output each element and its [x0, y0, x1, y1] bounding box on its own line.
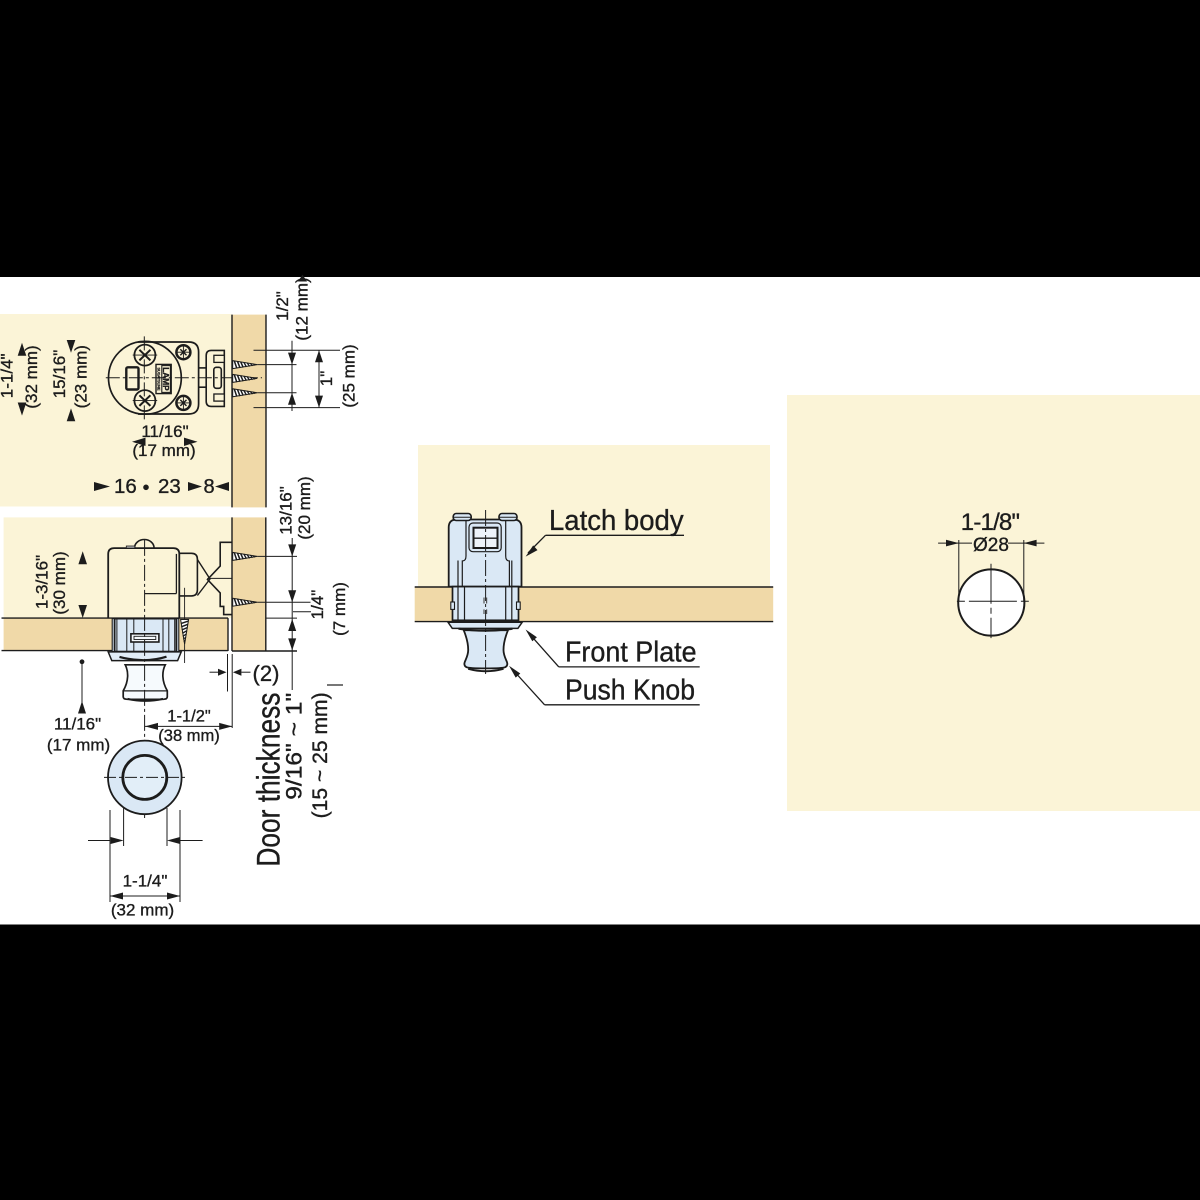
svg-text:(7 mm): (7 mm) — [330, 582, 349, 636]
svg-text:1/4": 1/4" — [308, 590, 327, 620]
svg-text:(23 mm): (23 mm) — [72, 345, 91, 408]
svg-text:(15 ~ 25 mm): (15 ~ 25 mm) — [309, 692, 332, 818]
svg-text:1-1/4": 1-1/4" — [123, 872, 168, 891]
svg-text:1/2": 1/2" — [273, 291, 292, 321]
svg-text:23: 23 — [158, 475, 181, 498]
svg-text:(2): (2) — [253, 661, 280, 686]
svg-text:11/16": 11/16" — [141, 422, 188, 441]
svg-text:9/16" ~ 1": 9/16" ~ 1" — [282, 693, 307, 800]
svg-text:(30 mm): (30 mm) — [50, 551, 69, 614]
svg-text:1-1/2": 1-1/2" — [167, 708, 211, 726]
svg-text:(25 mm): (25 mm) — [340, 344, 359, 407]
svg-text:11/16": 11/16" — [54, 715, 101, 734]
svg-text:16: 16 — [114, 475, 137, 498]
svg-text:(38 mm): (38 mm) — [158, 727, 219, 745]
svg-text:8: 8 — [204, 476, 215, 498]
svg-text:SUGATSUNE: SUGATSUNE — [157, 368, 161, 391]
svg-text:(12 mm): (12 mm) — [292, 277, 311, 340]
svg-text:15/16": 15/16" — [50, 350, 69, 399]
svg-text:Front Plate: Front Plate — [565, 637, 697, 669]
svg-text:Latch body: Latch body — [549, 505, 684, 537]
svg-text:1": 1" — [317, 371, 336, 387]
svg-text:(32 mm): (32 mm) — [111, 901, 174, 920]
svg-text:1-3/16": 1-3/16" — [33, 555, 52, 609]
svg-text:1-1/8": 1-1/8" — [961, 509, 1020, 536]
svg-text:(17 mm): (17 mm) — [47, 736, 110, 755]
svg-text:13/16": 13/16" — [277, 486, 296, 535]
svg-text:Ø28: Ø28 — [973, 535, 1009, 556]
svg-text:1-1/4": 1-1/4" — [0, 353, 16, 398]
svg-text:LAMP: LAMP — [161, 367, 170, 391]
svg-text:(20 mm): (20 mm) — [295, 476, 314, 539]
svg-text:Push Knob: Push Knob — [565, 675, 695, 707]
